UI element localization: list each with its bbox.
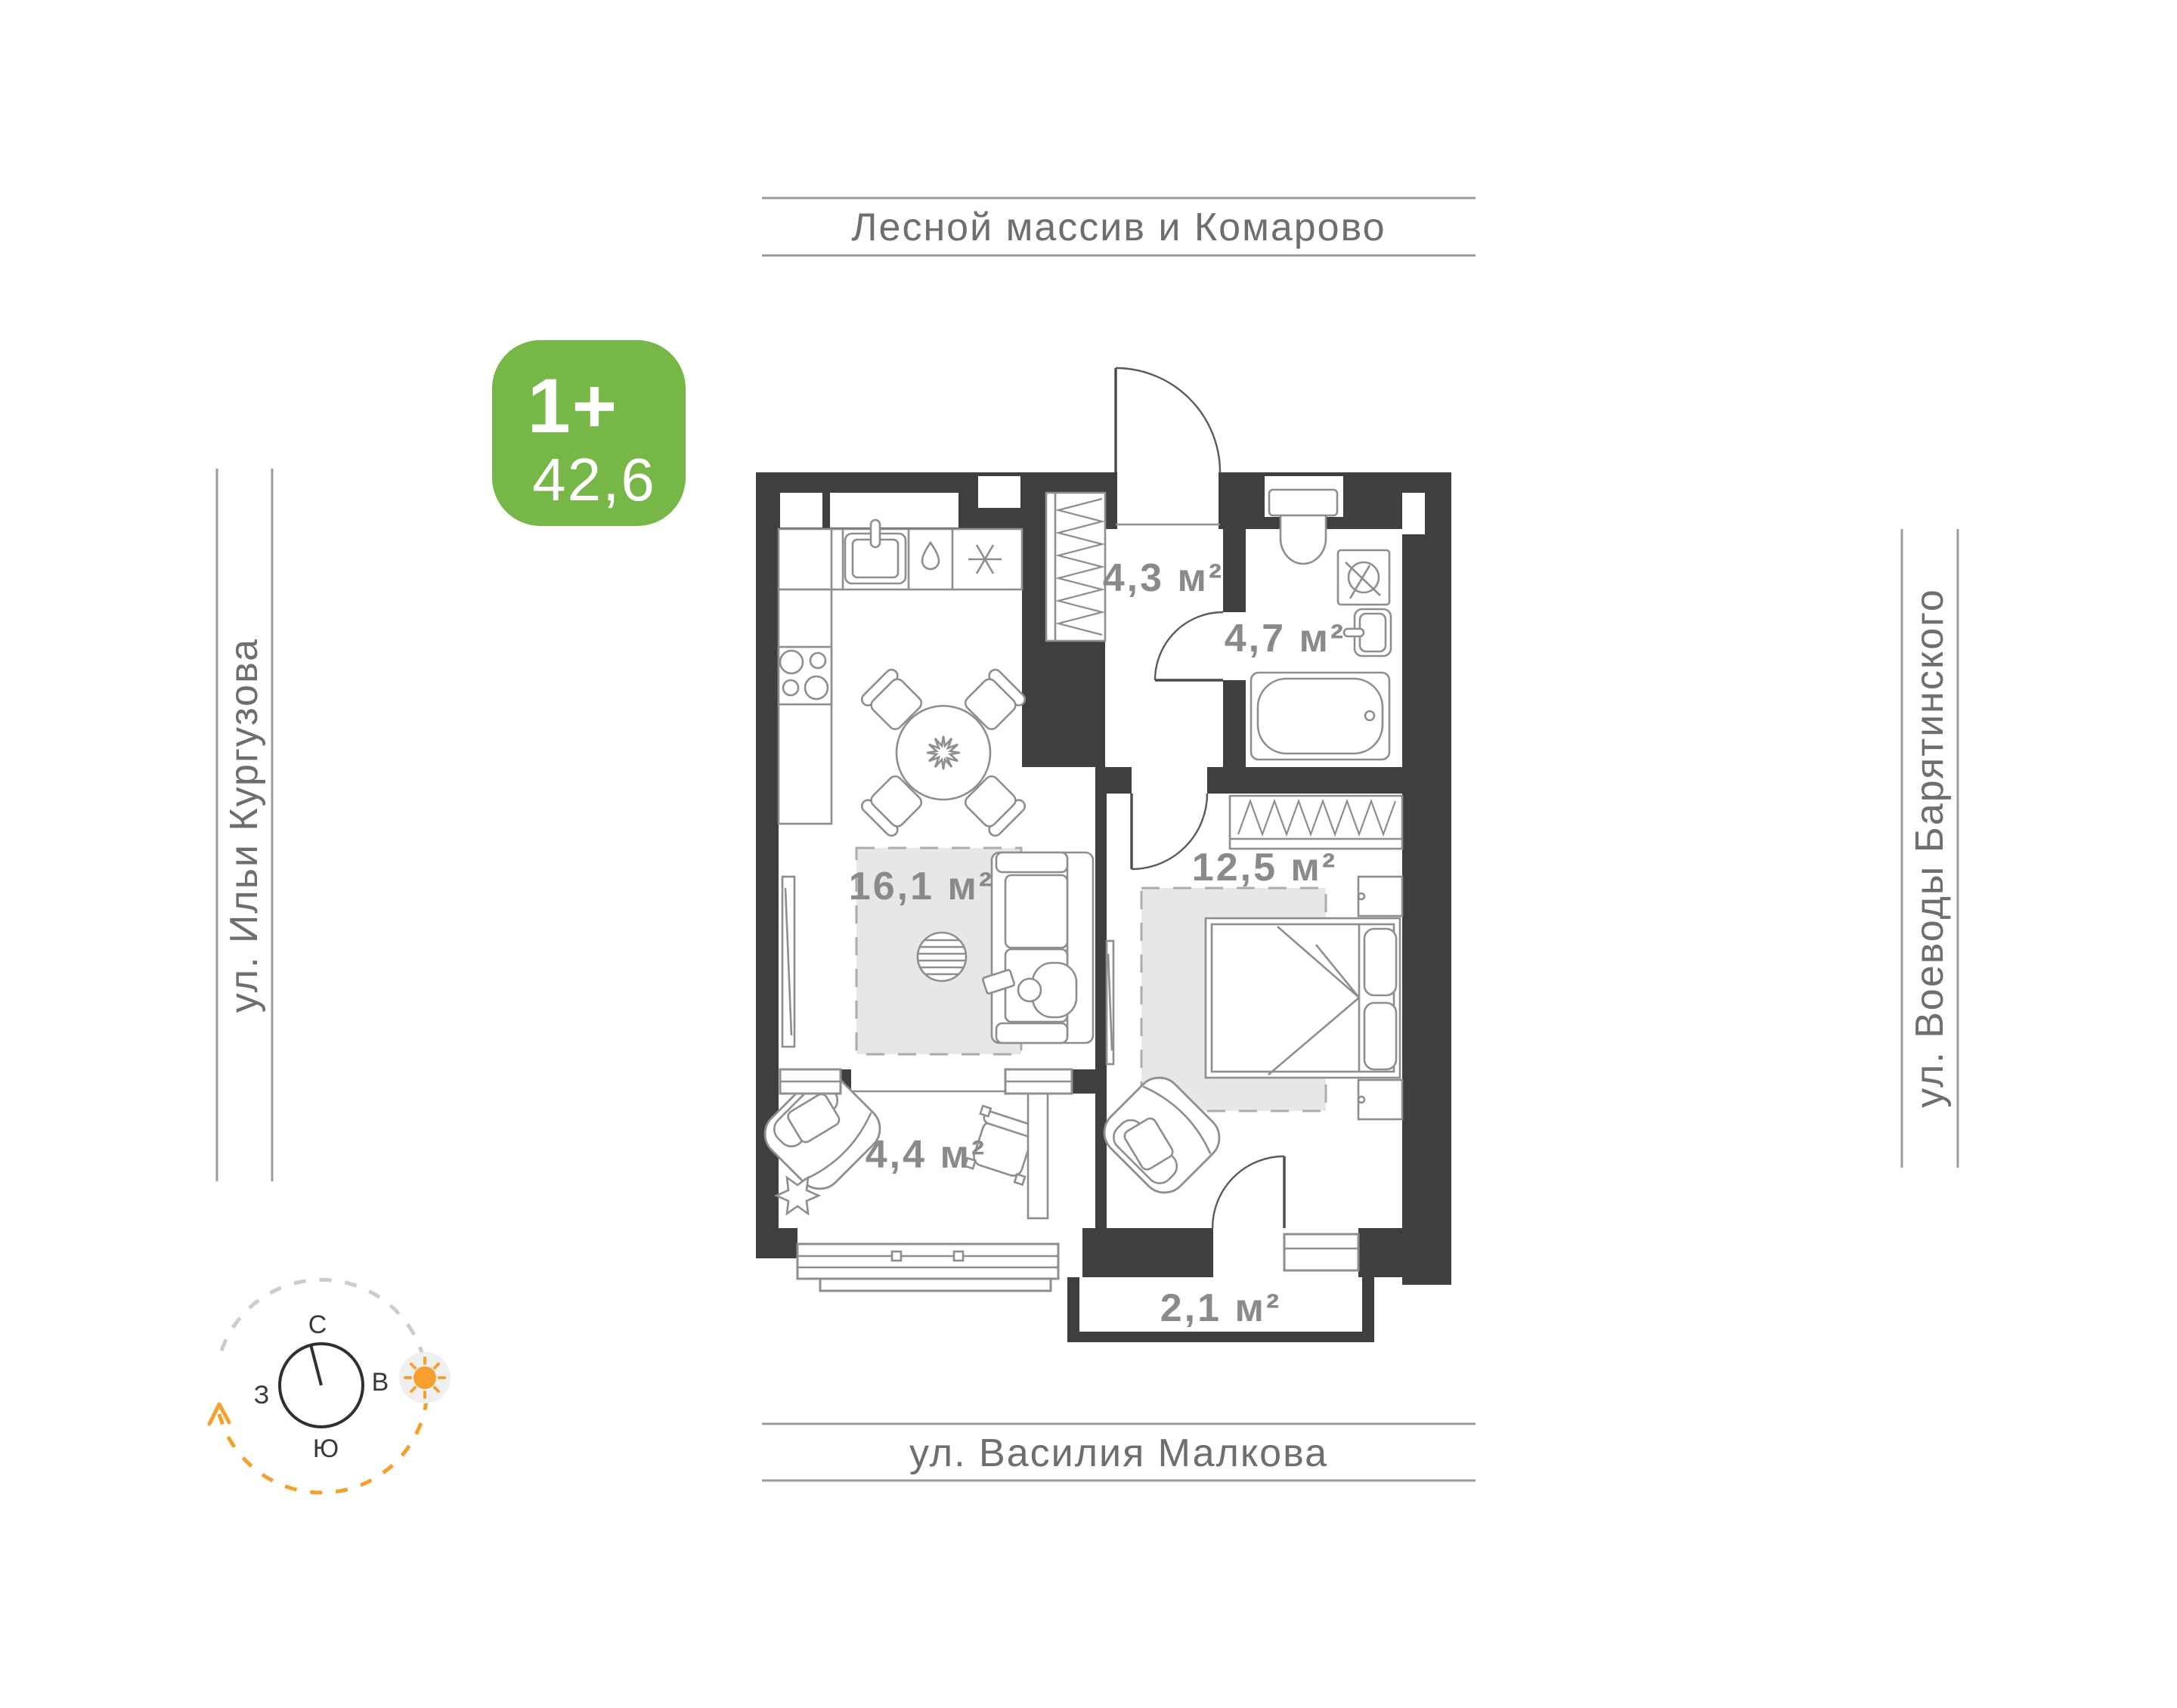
window-loggia-front — [797, 1244, 1058, 1279]
compass-south: Ю — [313, 1434, 339, 1463]
floor-plan-page: Лесной массив и Комарово ул. Василия Мал… — [0, 0, 2177, 1708]
window-living-loggia-right — [1005, 1069, 1072, 1094]
hallway-closet — [1046, 493, 1105, 641]
street-label-bottom: ул. Василия Малкова — [762, 1424, 1476, 1481]
street-top-text: Лесной массив и Комарово — [851, 206, 1386, 249]
room-label-bedroom: 12,5 м² — [1192, 846, 1337, 890]
wall-hall-bath-upper — [1223, 529, 1246, 612]
window-living-loggia-left — [780, 1069, 841, 1094]
wall-right — [1402, 529, 1451, 1285]
street-left-text: ул. Ильи Кургузова — [222, 638, 266, 1013]
dining-table — [897, 706, 990, 800]
sun-icon — [405, 1358, 444, 1397]
bathroom-sink — [1344, 609, 1391, 656]
niche-top-3 — [978, 476, 1020, 508]
tv — [782, 877, 794, 1047]
apartment-badge: 1+ 42,6 — [492, 340, 686, 526]
loggia-duct — [1028, 1081, 1048, 1218]
badge-area: 42,6 — [532, 446, 656, 513]
loggia-sill — [820, 1279, 1051, 1291]
compass: С В З Ю — [209, 1279, 451, 1493]
niche-right-wall — [1402, 493, 1425, 534]
wall-loggia-corner — [756, 1228, 797, 1258]
wall-balcony-bottom — [1067, 1332, 1374, 1342]
floor-plan-canvas: Лесной массив и Комарово ул. Василия Мал… — [0, 0, 2177, 1708]
street-label-left: ул. Ильи Кургузова — [217, 469, 272, 1181]
room-label-balcony: 2,1 м² — [1160, 1286, 1282, 1330]
wall-bedroom-top — [1207, 767, 1402, 794]
bathtub — [1251, 673, 1389, 760]
compass-east: В — [372, 1368, 389, 1397]
mirror — [1107, 941, 1113, 1064]
entrance-door — [1116, 368, 1220, 524]
street-label-right: ул. Воеводы Барятинского — [1902, 529, 1958, 1168]
street-right-text: ул. Воеводы Барятинского — [1908, 588, 1952, 1108]
compass-north: С — [308, 1310, 327, 1339]
pillow — [1364, 929, 1396, 995]
wall-bedroom-top-stub — [1107, 767, 1132, 794]
bed — [1206, 918, 1400, 1078]
dining-set — [859, 667, 1027, 838]
niche-top-1 — [780, 493, 822, 528]
wall-bedroom-bottom-right — [1358, 1228, 1451, 1277]
wall-hall-bath-lower — [1223, 680, 1246, 767]
washing-machine — [1338, 550, 1389, 605]
bathroom-door — [1155, 612, 1223, 680]
niche-top-2 — [830, 493, 958, 528]
badge-rooms: 1+ — [528, 363, 618, 449]
room-label-loggia: 4,4 м² — [866, 1133, 987, 1177]
street-bottom-text: ул. Василия Малкова — [909, 1431, 1328, 1475]
window-bedroom-balcony — [1284, 1234, 1358, 1270]
nightstand-bottom — [1358, 1080, 1402, 1119]
balcony-door — [1212, 1156, 1284, 1228]
wall-bedroom-bottom-left — [1082, 1228, 1213, 1277]
street-label-top: Лесной массив и Комарово — [762, 198, 1476, 255]
wall-closet-block — [1046, 641, 1105, 767]
room-label-bathroom: 4,7 м² — [1225, 617, 1346, 661]
wall-balcony-right — [1362, 1277, 1374, 1342]
wall-loggia-right-corner — [1072, 1069, 1107, 1094]
compass-west: З — [254, 1381, 270, 1409]
bedroom-wardrobe — [1230, 796, 1402, 849]
nightstand-top — [1358, 877, 1402, 916]
wall-living-bedroom-divider — [1095, 767, 1107, 1228]
kitchen-counter-left — [779, 589, 831, 824]
wall-kitchen-hall-stub — [1022, 529, 1046, 767]
room-label-hallway: 4,3 м² — [1103, 556, 1225, 600]
pillow — [1364, 1003, 1396, 1069]
room-label-kitchen-living: 16,1 м² — [849, 865, 994, 908]
stove-icon — [779, 647, 831, 704]
